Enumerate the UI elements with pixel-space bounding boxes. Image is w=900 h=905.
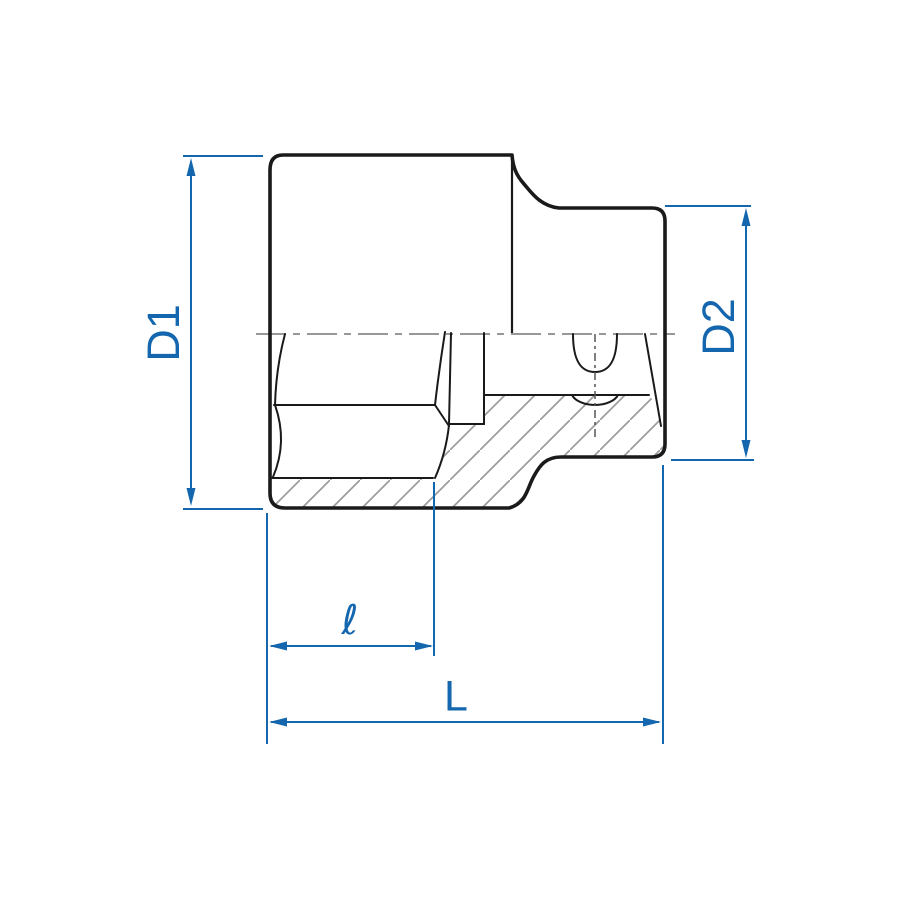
- d1-dimension: [183, 156, 263, 509]
- drawing-canvas: D1 D2 ℓ L: [0, 0, 900, 900]
- section-hatching: [270, 396, 663, 508]
- ell-dimension-label: ℓ: [342, 596, 359, 644]
- d1-dimension-label: D1: [138, 304, 190, 362]
- d2-dimension-label: D2: [693, 298, 745, 356]
- hex-cavity-lines: [272, 332, 449, 478]
- length-dimension-label: L: [444, 673, 468, 722]
- page: { "drawing": { "title": "socket cross-se…: [0, 0, 900, 900]
- socket-section-drawing: [0, 0, 900, 900]
- through-hole-lines: [449, 333, 484, 424]
